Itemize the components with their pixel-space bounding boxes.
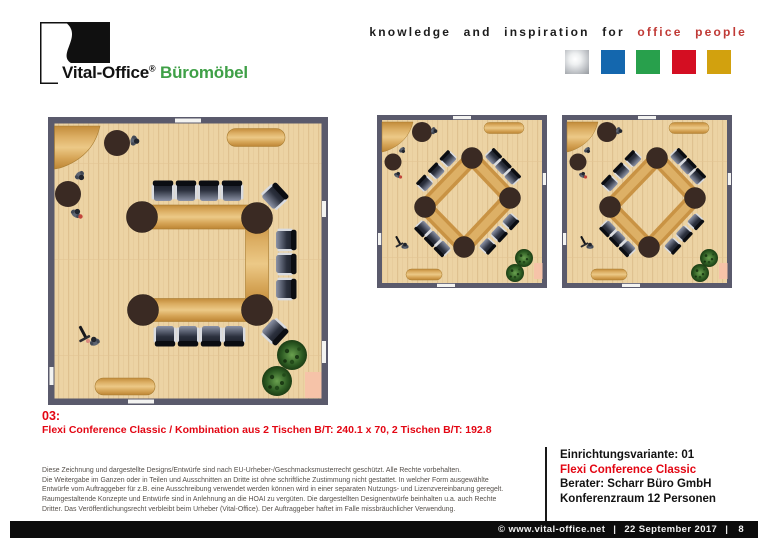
footer-date: 22 September 2017	[624, 524, 717, 535]
info-panel: Einrichtungsvariante: 01 Flexi Conferenc…	[560, 448, 716, 506]
legal-line: Entwürfe vom Auftraggeber für z.B. eine …	[42, 485, 542, 495]
tagline-highlight: office people	[637, 25, 747, 39]
square-red	[672, 50, 696, 74]
info-variant: Einrichtungsvariante: 01	[560, 448, 716, 463]
square-gold	[707, 50, 731, 74]
info-product: Flexi Conference Classic	[560, 463, 716, 478]
floorplan-large	[48, 117, 328, 405]
legal-line: Dritter. Das Veröffentlichungsrecht verb…	[42, 505, 542, 515]
tagline-prefix: knowledge and inspiration for	[369, 25, 624, 39]
square-blue	[601, 50, 625, 74]
logo-brand: Vital-Office	[62, 63, 149, 82]
plan-caption: 03: Flexi Conference Classic / Kombinati…	[42, 409, 492, 438]
logo-wordmark: Vital-Office® Büromöbel	[58, 63, 252, 84]
tagline: knowledge and inspiration for office peo…	[369, 25, 747, 39]
brand-color-squares	[565, 50, 731, 74]
floorplan-variant-1	[377, 115, 547, 288]
legal-line: Diese Zeichnung und dargestellte Designs…	[42, 466, 542, 476]
footer-copyright[interactable]: © www.vital-office.net	[498, 524, 605, 535]
footer-separator: |	[613, 524, 616, 535]
registered-mark: ®	[149, 63, 155, 73]
caption-number: 03:	[42, 409, 492, 423]
footer-bar: © www.vital-office.net | 22 September 20…	[10, 521, 758, 538]
legal-line: Raumgestaltende Konzepte und Entwürfe si…	[42, 495, 542, 505]
footer-separator: |	[725, 524, 728, 535]
logo-product: Büromöbel	[160, 63, 248, 82]
legal-line: Die Weitergabe im Ganzen oder in Teilen …	[42, 476, 542, 486]
square-silver	[565, 50, 589, 74]
footer-page-number: 8	[738, 524, 744, 535]
brochure-page: Vital-Office® Büromöbel knowledge and in…	[0, 0, 768, 543]
square-green	[636, 50, 660, 74]
caption-description: Flexi Conference Classic / Kombination a…	[42, 423, 492, 438]
floorplan-variant-2	[562, 115, 732, 288]
info-room: Konferenzraum 12 Personen	[560, 492, 716, 507]
legal-text: Diese Zeichnung und dargestellte Designs…	[42, 466, 542, 515]
info-consultant: Berater: Scharr Büro GmbH	[560, 477, 716, 492]
divider-line	[545, 447, 547, 521]
